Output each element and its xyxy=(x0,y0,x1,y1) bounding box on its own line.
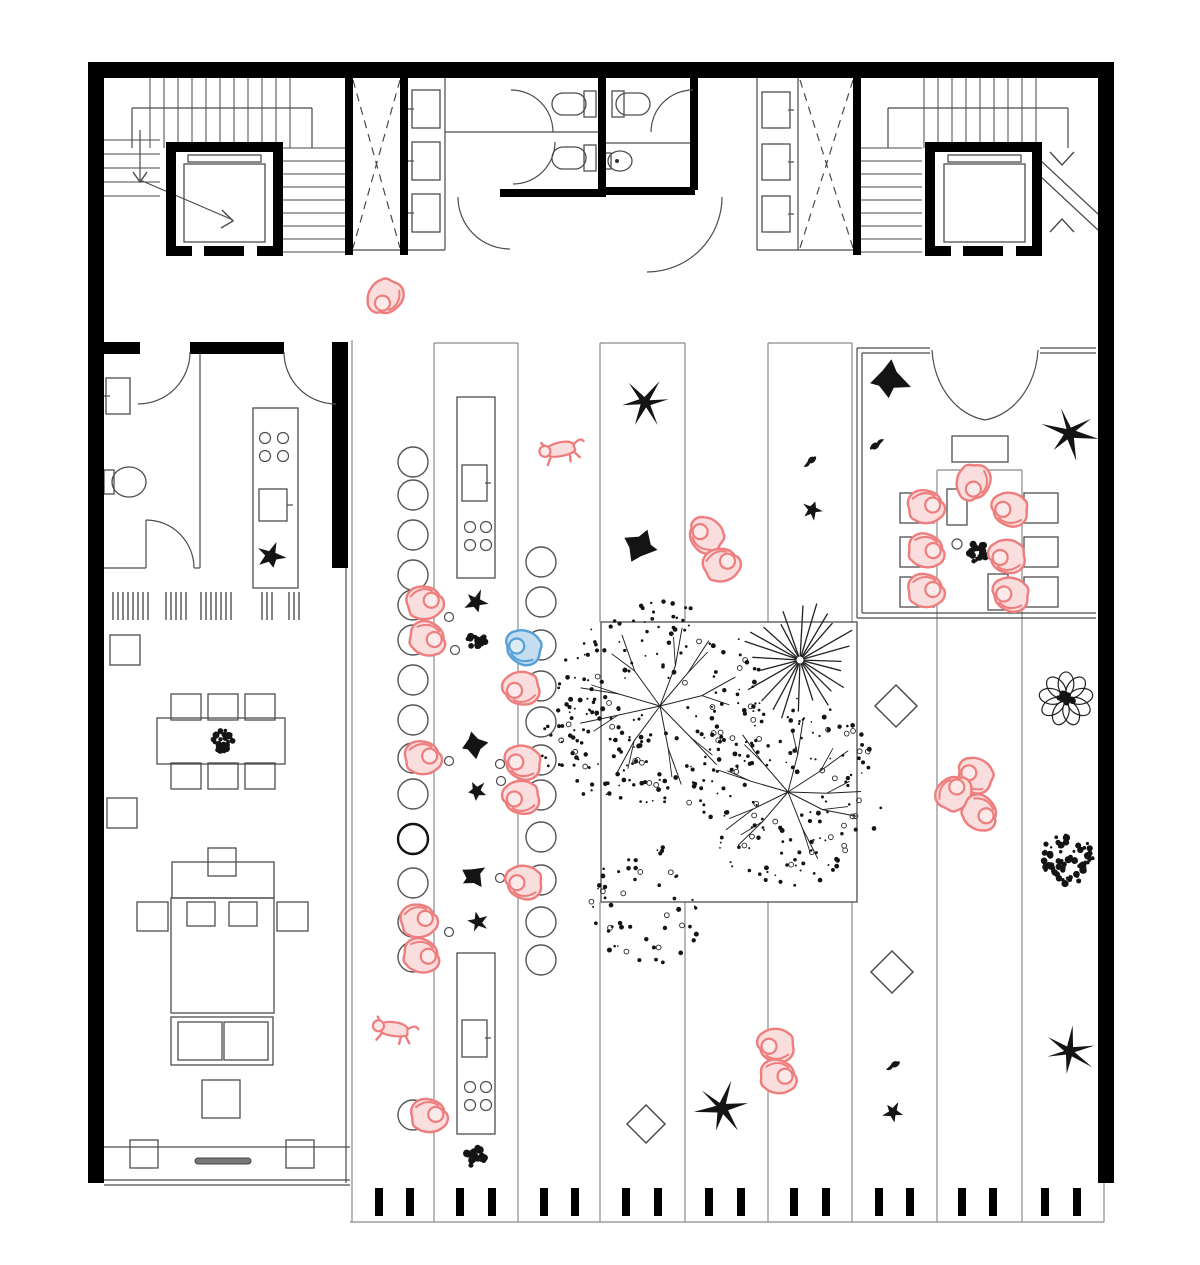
burner-or-cup xyxy=(260,433,271,444)
direction-arrow xyxy=(1050,219,1074,232)
blossom-ring xyxy=(595,674,600,679)
blossom-dot xyxy=(595,648,599,652)
furniture-outline xyxy=(412,90,440,128)
blossom-dot xyxy=(570,716,574,720)
blossom-dot xyxy=(646,738,650,742)
blossom-dot xyxy=(800,813,803,816)
bar-stool xyxy=(526,907,556,937)
blossom-dot xyxy=(589,687,593,691)
bush-dot xyxy=(481,644,484,647)
person xyxy=(401,936,442,975)
door-swing xyxy=(985,350,1038,420)
blossom-dot xyxy=(810,850,812,852)
plant-star xyxy=(464,588,490,613)
blossom-dot xyxy=(641,639,644,642)
furniture-outline xyxy=(1024,537,1058,567)
blossom-dot xyxy=(737,845,741,849)
blossom-dot xyxy=(751,744,755,748)
bush-dot xyxy=(1081,868,1087,874)
person-head xyxy=(995,501,1011,517)
furniture-outline xyxy=(948,155,1021,162)
blossom-dot xyxy=(675,736,679,740)
blossom-dot xyxy=(640,740,643,743)
blossom-dot xyxy=(606,781,610,785)
blossom-dot xyxy=(645,760,648,763)
burner-or-cup xyxy=(278,451,289,462)
toilet-bowl xyxy=(552,93,586,115)
bush-dot xyxy=(468,643,474,649)
dog xyxy=(371,1016,419,1046)
blossom-dot xyxy=(735,765,738,768)
blossom-dot xyxy=(662,779,667,784)
deck-ticks xyxy=(375,1188,1081,1216)
blossom-dot xyxy=(846,776,850,780)
blossom-dot xyxy=(713,710,716,713)
blossom-dot xyxy=(630,662,633,665)
blossom-dot xyxy=(846,725,849,728)
blossom-dot xyxy=(633,746,635,748)
blossom-dot xyxy=(827,864,829,866)
blossom-dot xyxy=(652,800,654,802)
wall-segment xyxy=(166,142,283,152)
tree-branch xyxy=(718,770,788,792)
blossom-dot xyxy=(623,649,626,652)
blossom-dot xyxy=(606,793,608,795)
palm-plant xyxy=(622,381,668,425)
blossom-dot xyxy=(715,691,718,694)
blossom-dot xyxy=(619,925,624,930)
blossom-ring xyxy=(624,949,629,954)
blossom-dot xyxy=(702,779,705,782)
bird-silhouette xyxy=(885,1060,901,1070)
floor-plan-page xyxy=(0,0,1200,1265)
blossom-dot xyxy=(729,795,731,797)
blossom-dot xyxy=(594,921,598,925)
tree-twig xyxy=(822,807,848,810)
blossom-dot xyxy=(661,599,665,603)
blossom-dot xyxy=(600,706,605,711)
plant-flower xyxy=(1038,672,1094,727)
deck-tick xyxy=(906,1188,914,1216)
wall-segment xyxy=(204,246,244,256)
blossom-dot xyxy=(756,836,760,840)
tree-branch xyxy=(616,706,660,775)
palm-frond xyxy=(773,663,798,710)
deck-tick xyxy=(705,1188,713,1216)
blossom-dot xyxy=(748,847,750,849)
bush-dot xyxy=(1076,878,1081,883)
wall-segment xyxy=(925,246,951,256)
blossom-dot xyxy=(582,792,586,796)
deck-tick xyxy=(1041,1188,1049,1216)
blossom-dot xyxy=(797,850,801,854)
furniture-outline xyxy=(208,694,238,720)
blossom-dot xyxy=(618,641,620,643)
tree-twig xyxy=(820,748,832,771)
blossom-dot xyxy=(569,711,571,713)
furniture-outline xyxy=(208,763,238,789)
person xyxy=(907,532,946,569)
door-swing xyxy=(511,90,553,132)
blossom-dot xyxy=(785,762,787,764)
deck-tick xyxy=(571,1188,579,1216)
direction-arrow xyxy=(1050,152,1074,165)
blossom-dot xyxy=(685,645,688,648)
blossom-ring xyxy=(656,945,661,950)
blossom-dot xyxy=(844,780,847,783)
blossom-ring xyxy=(638,870,643,875)
blossom-dot xyxy=(633,878,636,881)
blossom-dot xyxy=(588,709,590,711)
furniture-outline xyxy=(245,694,275,720)
blossom-dot xyxy=(819,837,821,839)
wall-segment xyxy=(963,246,1003,256)
tree-branch xyxy=(788,792,861,794)
person-head xyxy=(428,1106,444,1122)
person xyxy=(906,487,946,525)
deck-tick xyxy=(375,1188,383,1216)
blossom-dot xyxy=(607,948,612,953)
tree-branch xyxy=(788,792,818,859)
furniture-outline xyxy=(762,144,790,180)
blossom-dot xyxy=(663,796,666,799)
blossom-dot xyxy=(694,906,697,909)
bar-stool xyxy=(526,547,556,577)
furniture-outline xyxy=(457,953,495,1134)
bush-dot xyxy=(1056,863,1063,870)
blossom-dot xyxy=(582,728,585,731)
plant-palmStar xyxy=(689,1078,755,1140)
bench-slat xyxy=(195,1158,251,1164)
bush-dot xyxy=(1068,875,1073,880)
blossom-dot xyxy=(730,768,734,772)
burner-or-cup xyxy=(496,760,505,769)
blossom-dot xyxy=(725,810,730,815)
blossom-dot xyxy=(613,619,617,623)
plant-bush xyxy=(463,1145,488,1168)
blossom-ring xyxy=(664,913,669,918)
blossom-dot xyxy=(632,619,635,622)
burner-or-cup xyxy=(496,874,505,883)
wall-segment xyxy=(88,62,104,1183)
blossom-dot xyxy=(628,739,631,742)
palm-frond xyxy=(803,660,841,661)
bush-dot xyxy=(1043,850,1048,855)
blossom-dot xyxy=(795,747,797,749)
blossom-ring xyxy=(607,701,612,706)
person xyxy=(362,274,409,322)
furniture-outline xyxy=(178,1022,222,1060)
blossom-dot xyxy=(702,811,705,814)
blossom-dot xyxy=(751,826,753,828)
blossom-ring xyxy=(737,666,742,671)
blossom-dot xyxy=(558,682,561,685)
blossom-dot xyxy=(689,606,693,610)
blossom-ring xyxy=(750,834,755,839)
bush-dot xyxy=(1050,846,1052,848)
blossom-dot xyxy=(673,897,677,901)
blossom-dot xyxy=(611,925,614,928)
blossom-dot xyxy=(780,852,783,855)
blossom-dot xyxy=(826,811,829,814)
drain-dot xyxy=(615,159,619,163)
bush-dot xyxy=(1043,842,1048,847)
blossom-dot xyxy=(597,883,602,888)
blossom-dot xyxy=(818,878,823,883)
furniture-outline xyxy=(171,763,201,789)
blossom-dot xyxy=(590,628,592,630)
wall-segment xyxy=(925,142,1042,152)
blossom-dot xyxy=(757,668,761,672)
door-swing xyxy=(138,352,190,404)
blossom-dot xyxy=(762,713,765,716)
bush-dot xyxy=(1062,865,1066,869)
person-head xyxy=(925,542,941,558)
blossom-dot xyxy=(795,864,797,866)
person xyxy=(757,1028,794,1063)
blossom-dot xyxy=(769,759,771,761)
wall-segment xyxy=(88,62,1114,78)
blossom-ring xyxy=(751,717,756,722)
bar-stool xyxy=(398,520,428,550)
blossom-dot xyxy=(663,926,667,930)
palm-plant xyxy=(689,1078,755,1140)
person-head xyxy=(421,748,438,765)
blossom-dot xyxy=(670,601,675,606)
blossom-ring xyxy=(843,848,848,853)
blossom-dot xyxy=(712,768,716,772)
blossom-dot xyxy=(801,861,805,865)
people xyxy=(362,274,1030,1134)
wall-segment xyxy=(332,342,348,568)
blossom-dot xyxy=(795,769,800,774)
blossom-dot xyxy=(612,754,616,758)
blossom-dot xyxy=(616,706,620,710)
blossom-dot xyxy=(694,932,699,937)
blossom-dot xyxy=(721,786,725,790)
blossom-dot xyxy=(708,642,711,645)
dog xyxy=(538,434,587,467)
bush-dot xyxy=(1072,850,1075,853)
floor-plan-drawing xyxy=(0,0,1200,1265)
blossom-dot xyxy=(627,669,630,672)
blossom-dot xyxy=(618,921,622,925)
blossom-dot xyxy=(748,869,752,873)
blossom-dot xyxy=(613,739,615,741)
furniture-outline xyxy=(107,798,137,828)
blossom-dot xyxy=(601,873,606,878)
blossom-ring xyxy=(752,813,757,818)
blossom-dot xyxy=(735,743,738,746)
furniture-outline xyxy=(188,155,261,162)
person-head xyxy=(924,497,941,514)
blossom-dot xyxy=(622,778,627,783)
blossom-dot xyxy=(661,665,665,669)
blossom-dot xyxy=(829,758,831,760)
person-head xyxy=(777,1068,793,1084)
wall-segment xyxy=(257,246,283,256)
blossom-dot xyxy=(609,625,613,629)
plant-star xyxy=(258,542,286,568)
blossom-ring xyxy=(842,823,847,828)
wall-segment xyxy=(925,142,935,256)
deck-tick xyxy=(622,1188,630,1216)
bush-dot xyxy=(480,1159,483,1162)
blossom-dot xyxy=(745,660,750,665)
blossom-dot xyxy=(671,615,675,619)
wall-segment xyxy=(1016,246,1042,256)
blossom-dot xyxy=(816,811,821,816)
blossom-dot xyxy=(683,629,686,632)
blossom-dot xyxy=(760,720,764,724)
furniture-outline xyxy=(172,862,274,898)
person-head xyxy=(992,549,1008,565)
furniture-outline xyxy=(412,194,440,232)
blossom-dot xyxy=(679,651,682,654)
deck-tick xyxy=(456,1188,464,1216)
blossom-dot xyxy=(637,958,641,962)
star-plant xyxy=(258,542,286,568)
bush-dot xyxy=(1063,834,1070,841)
door-swing xyxy=(458,197,510,249)
blossom-dot xyxy=(738,638,740,640)
blossom-dot xyxy=(719,847,721,849)
tree-twig xyxy=(729,809,753,819)
furniture-outline xyxy=(110,635,140,665)
person xyxy=(403,738,443,776)
blossom-ring xyxy=(621,891,626,896)
diamond-table xyxy=(871,951,913,993)
tree-spray xyxy=(589,845,699,964)
blossom-dot xyxy=(587,679,589,681)
plant-palmStar xyxy=(1038,1018,1105,1084)
bush-dot xyxy=(218,728,224,734)
blossom-dot xyxy=(867,766,871,770)
blossom-dot xyxy=(791,729,795,733)
blossom-dot xyxy=(652,945,656,949)
blossom-dot xyxy=(544,756,547,759)
blossom-dot xyxy=(617,747,621,751)
blossom-dot xyxy=(751,704,755,708)
bird-silhouette xyxy=(801,455,818,467)
plant-bird xyxy=(885,1060,901,1070)
bush-dot xyxy=(479,639,485,645)
blossom-dot xyxy=(565,675,570,680)
wall-segment xyxy=(190,342,284,354)
blossom-dot xyxy=(798,723,800,725)
blossom-dot xyxy=(699,799,702,802)
tree-branch xyxy=(726,792,788,830)
blossom-dot xyxy=(732,751,737,756)
blossom-dot xyxy=(840,832,843,835)
blossom-dot xyxy=(815,851,818,854)
blossom-dot xyxy=(704,756,707,759)
bush-dot xyxy=(968,548,974,554)
toilet-bowl xyxy=(552,147,586,169)
furniture-outline xyxy=(202,1080,240,1118)
wall-segment xyxy=(690,78,698,190)
blossom-dot xyxy=(848,803,851,806)
tree-twig xyxy=(673,637,675,666)
blossom-dot xyxy=(657,626,660,629)
palm-frond xyxy=(801,604,817,657)
blossom-dot xyxy=(753,667,757,671)
blossom-dot xyxy=(691,899,693,901)
blossom-dot xyxy=(639,735,644,740)
blossom-ring xyxy=(680,923,685,928)
bush-dot xyxy=(1065,856,1072,863)
blossom-dot xyxy=(800,737,803,740)
bar-stool xyxy=(526,587,556,617)
blossom-dot xyxy=(592,701,596,705)
blossom-dot xyxy=(825,800,827,802)
bar-stool xyxy=(398,665,428,695)
plant-star xyxy=(803,502,823,521)
blossom-dot xyxy=(834,857,839,862)
blossom-dot xyxy=(721,650,726,655)
blossom-dot xyxy=(812,732,814,734)
blossom-dot xyxy=(590,782,594,786)
palm-plant xyxy=(1034,404,1104,466)
tree-branch xyxy=(660,706,717,765)
palm-frond xyxy=(800,605,803,656)
blossom-dot xyxy=(709,748,711,750)
blossom-dot xyxy=(609,903,614,908)
blossom-dot xyxy=(556,708,560,712)
wall-segment xyxy=(166,142,176,256)
blossom-dot xyxy=(708,815,712,819)
blossom-dot xyxy=(673,627,678,632)
blossom-ring xyxy=(718,730,723,735)
flower-center-dot xyxy=(1059,697,1064,702)
blossom-dot xyxy=(580,741,583,744)
blossom-dot xyxy=(627,858,630,861)
blossom-dot xyxy=(743,783,747,787)
blossom-dot xyxy=(588,766,591,769)
burner-or-cup xyxy=(481,1082,492,1093)
burner-or-cup xyxy=(481,540,492,551)
burner-or-cup xyxy=(465,1082,476,1093)
blossom-dot xyxy=(560,763,564,767)
bush-dot xyxy=(1071,857,1078,864)
blossom-dot xyxy=(684,606,687,609)
blossom-dot xyxy=(717,748,720,751)
diamond-table xyxy=(627,1105,665,1143)
blossom-ring xyxy=(647,781,652,786)
bush-dot xyxy=(215,748,220,753)
bush-dot xyxy=(977,555,980,558)
blossom-dot xyxy=(696,729,700,733)
bush-dot xyxy=(1077,864,1081,868)
blossom-dot xyxy=(821,795,824,798)
blossom-dot xyxy=(685,764,689,768)
blossom-dot xyxy=(618,785,620,787)
person xyxy=(955,463,992,502)
blossom-dot xyxy=(720,702,724,706)
blossom-dot xyxy=(584,752,588,756)
burner-or-cup xyxy=(481,1100,492,1111)
toilet-bowl xyxy=(112,467,146,497)
blossom-dot xyxy=(597,716,602,721)
blossom-dot xyxy=(860,743,864,747)
blossom-ring xyxy=(566,722,571,727)
wall-segment xyxy=(500,189,598,197)
blossom-dot xyxy=(711,780,713,782)
blossom-dot xyxy=(657,772,661,776)
bush-dot xyxy=(1052,869,1058,875)
windmill-plant xyxy=(456,857,493,894)
deck-tick xyxy=(488,1188,496,1216)
